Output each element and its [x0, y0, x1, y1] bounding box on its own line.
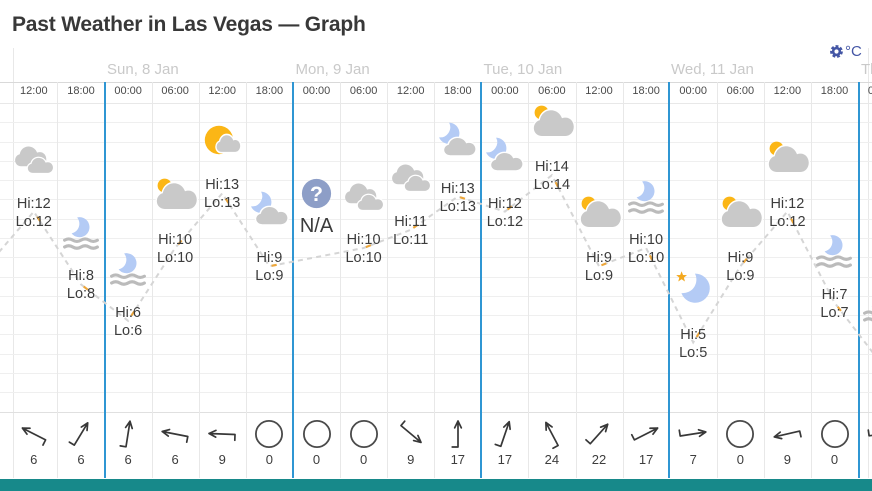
- svg-text:?: ?: [310, 182, 323, 206]
